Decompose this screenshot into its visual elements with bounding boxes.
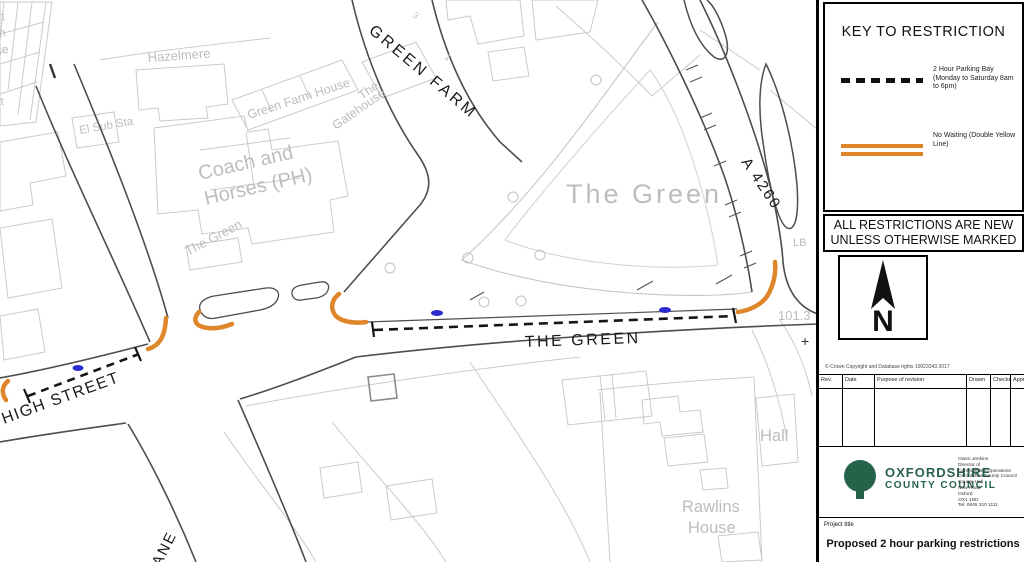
- col-date: Date: [843, 375, 875, 388]
- street-label-high-street: HIGH STREET: [0, 369, 122, 427]
- copyright-note: © Crown Copyright and Database rights 10…: [825, 364, 950, 370]
- label-el-sub-sta: El Sub Sta: [78, 116, 134, 137]
- council-logo-box: OXFORDSHIRE COUNTY COUNCIL Owen Jenkins …: [819, 447, 1024, 518]
- label-the-green-small: The Green: [182, 216, 244, 258]
- street-label-green-farm: GREEN FARM: [365, 22, 480, 122]
- street-label-georges-lane: GEORGES LANE: [100, 529, 180, 562]
- green-triangle: [385, 22, 752, 307]
- label-rawlins-1: Rawlins: [682, 498, 740, 516]
- revision-table: Rev. Date Purpose of revision Drawn Chec…: [819, 374, 1024, 447]
- label-edge-use: use: [0, 42, 10, 59]
- no-waiting-island: [195, 312, 232, 328]
- restrictions-note-box: ALL RESTRICTIONS ARE NEW UNLESS OTHERWIS…: [823, 214, 1024, 252]
- plus-mark: +: [801, 333, 809, 349]
- note-line-2: UNLESS OTHERWISE MARKED: [825, 233, 1022, 248]
- no-waiting-symbol: [841, 144, 923, 160]
- note-line-1: ALL RESTRICTIONS ARE NEW: [825, 218, 1022, 233]
- label-the-green-large: The Green: [566, 179, 722, 209]
- no-waiting-high-street-corner: [148, 318, 166, 349]
- label-hazelmere: Hazelmere: [147, 46, 211, 65]
- revision-empty-row: [819, 389, 1024, 447]
- revision-header-row: Rev. Date Purpose of revision Drawn Chec…: [819, 375, 1024, 389]
- label-edge-rm: rm: [0, 25, 6, 41]
- parking-bay-symbol: [841, 78, 923, 83]
- parking-bay-label: 2 Hour Parking Bay (Monday to Saturday 8…: [933, 66, 1021, 92]
- no-waiting-west-end: [3, 381, 8, 400]
- yellow-line-bar: [841, 152, 923, 156]
- col-purpose: Purpose of revision: [875, 375, 967, 388]
- street-label-the-green: THE GREEN: [525, 330, 641, 351]
- key-title: KEY TO RESTRICTION: [825, 24, 1022, 40]
- blue-marker: [431, 310, 443, 316]
- project-title-box: Project title Proposed 2 hour parking re…: [819, 518, 1024, 562]
- north-letter: N: [872, 305, 894, 338]
- north-arrow-icon: N: [840, 257, 926, 338]
- col-approved: Approved: [1011, 375, 1024, 388]
- no-waiting-label: No Waiting (Double Yellow Line): [933, 132, 1021, 149]
- col-checked: Checked: [991, 375, 1011, 388]
- project-title: Proposed 2 hour parking restrictions: [819, 538, 1024, 550]
- council-address: Owen Jenkins Director of Communities Ope…: [958, 457, 1017, 509]
- col-rev: Rev.: [819, 375, 843, 388]
- label-rawlins-2: House: [688, 519, 736, 537]
- yellow-line-bar: [841, 144, 923, 148]
- no-waiting-a4260-corner: [738, 262, 775, 312]
- blue-marker: [73, 365, 84, 371]
- north-arrow-box: N: [838, 255, 928, 340]
- label-green-farm-house: Green Farm House: [246, 75, 352, 121]
- parking-bay-markings: [24, 308, 736, 403]
- street-label-a4260: A 4260: [738, 155, 785, 213]
- key-to-restriction-box: KEY TO RESTRICTION 2 Hour Parking Bay (M…: [823, 2, 1024, 212]
- blue-marker: [659, 307, 671, 313]
- label-lb: LB: [793, 237, 806, 249]
- no-waiting-green-west: [332, 294, 366, 323]
- col-drawn: Drawn: [967, 375, 991, 388]
- label-num3: 3: [411, 10, 421, 21]
- road-kerbs: [0, 0, 818, 562]
- label-hall: Hall: [760, 427, 788, 445]
- label-spot-height: 101.3: [778, 308, 811, 323]
- title-panel: KEY TO RESTRICTION 2 Hour Parking Bay (M…: [816, 0, 1024, 562]
- map-canvas: GREEN FARM A 4260 HIGH STREET THE GREEN …: [0, 0, 818, 562]
- label-edge-oft: oft: [0, 9, 6, 25]
- project-title-label: Project title: [824, 522, 854, 528]
- council-tree-icon: [841, 459, 881, 503]
- label-edge-ott: ott: [0, 96, 4, 109]
- parking-bay-the-green: [374, 316, 735, 330]
